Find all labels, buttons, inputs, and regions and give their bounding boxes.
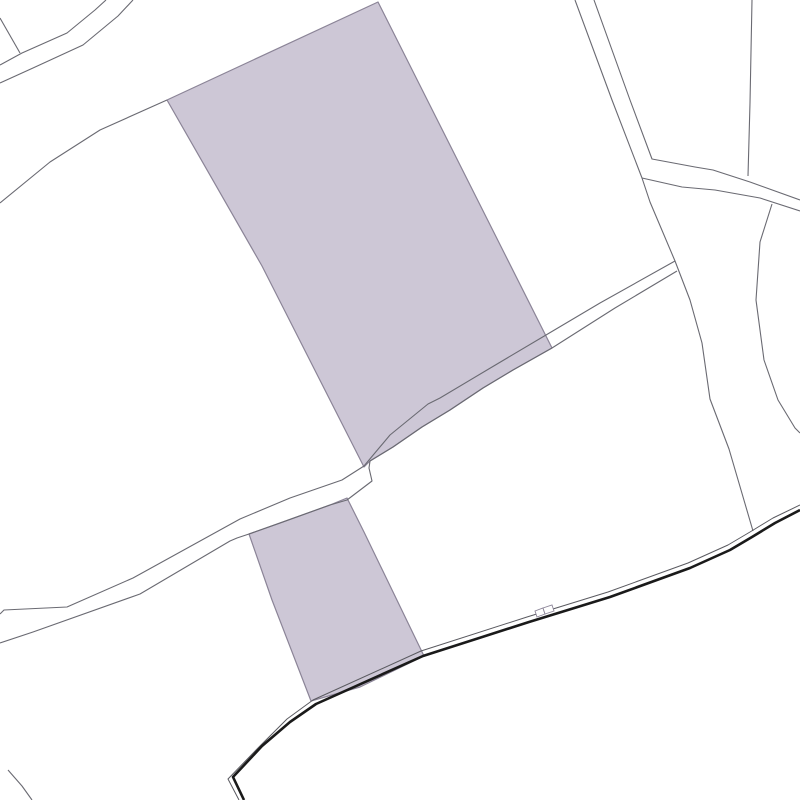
highlighted-parcel-large[interactable]	[167, 2, 552, 467]
road-ne-lower-edge	[642, 178, 800, 211]
boundary-west	[0, 100, 167, 203]
boundary-bottom-left	[8, 770, 32, 800]
boundary-top-right	[748, 0, 752, 176]
boundary-long-north-south	[575, 0, 753, 531]
road-nw-upper-edge	[0, 0, 106, 65]
highlighted-parcel-small[interactable]	[249, 498, 424, 701]
road-nw-lower-edge	[0, 0, 133, 83]
road-ne-upper-edge	[594, 0, 800, 200]
spur-top-left	[0, 18, 20, 53]
map-viewport[interactable]	[0, 0, 800, 800]
small-building-marker-2	[543, 605, 554, 614]
boundary-east	[756, 204, 800, 433]
cadastral-map	[0, 0, 800, 800]
